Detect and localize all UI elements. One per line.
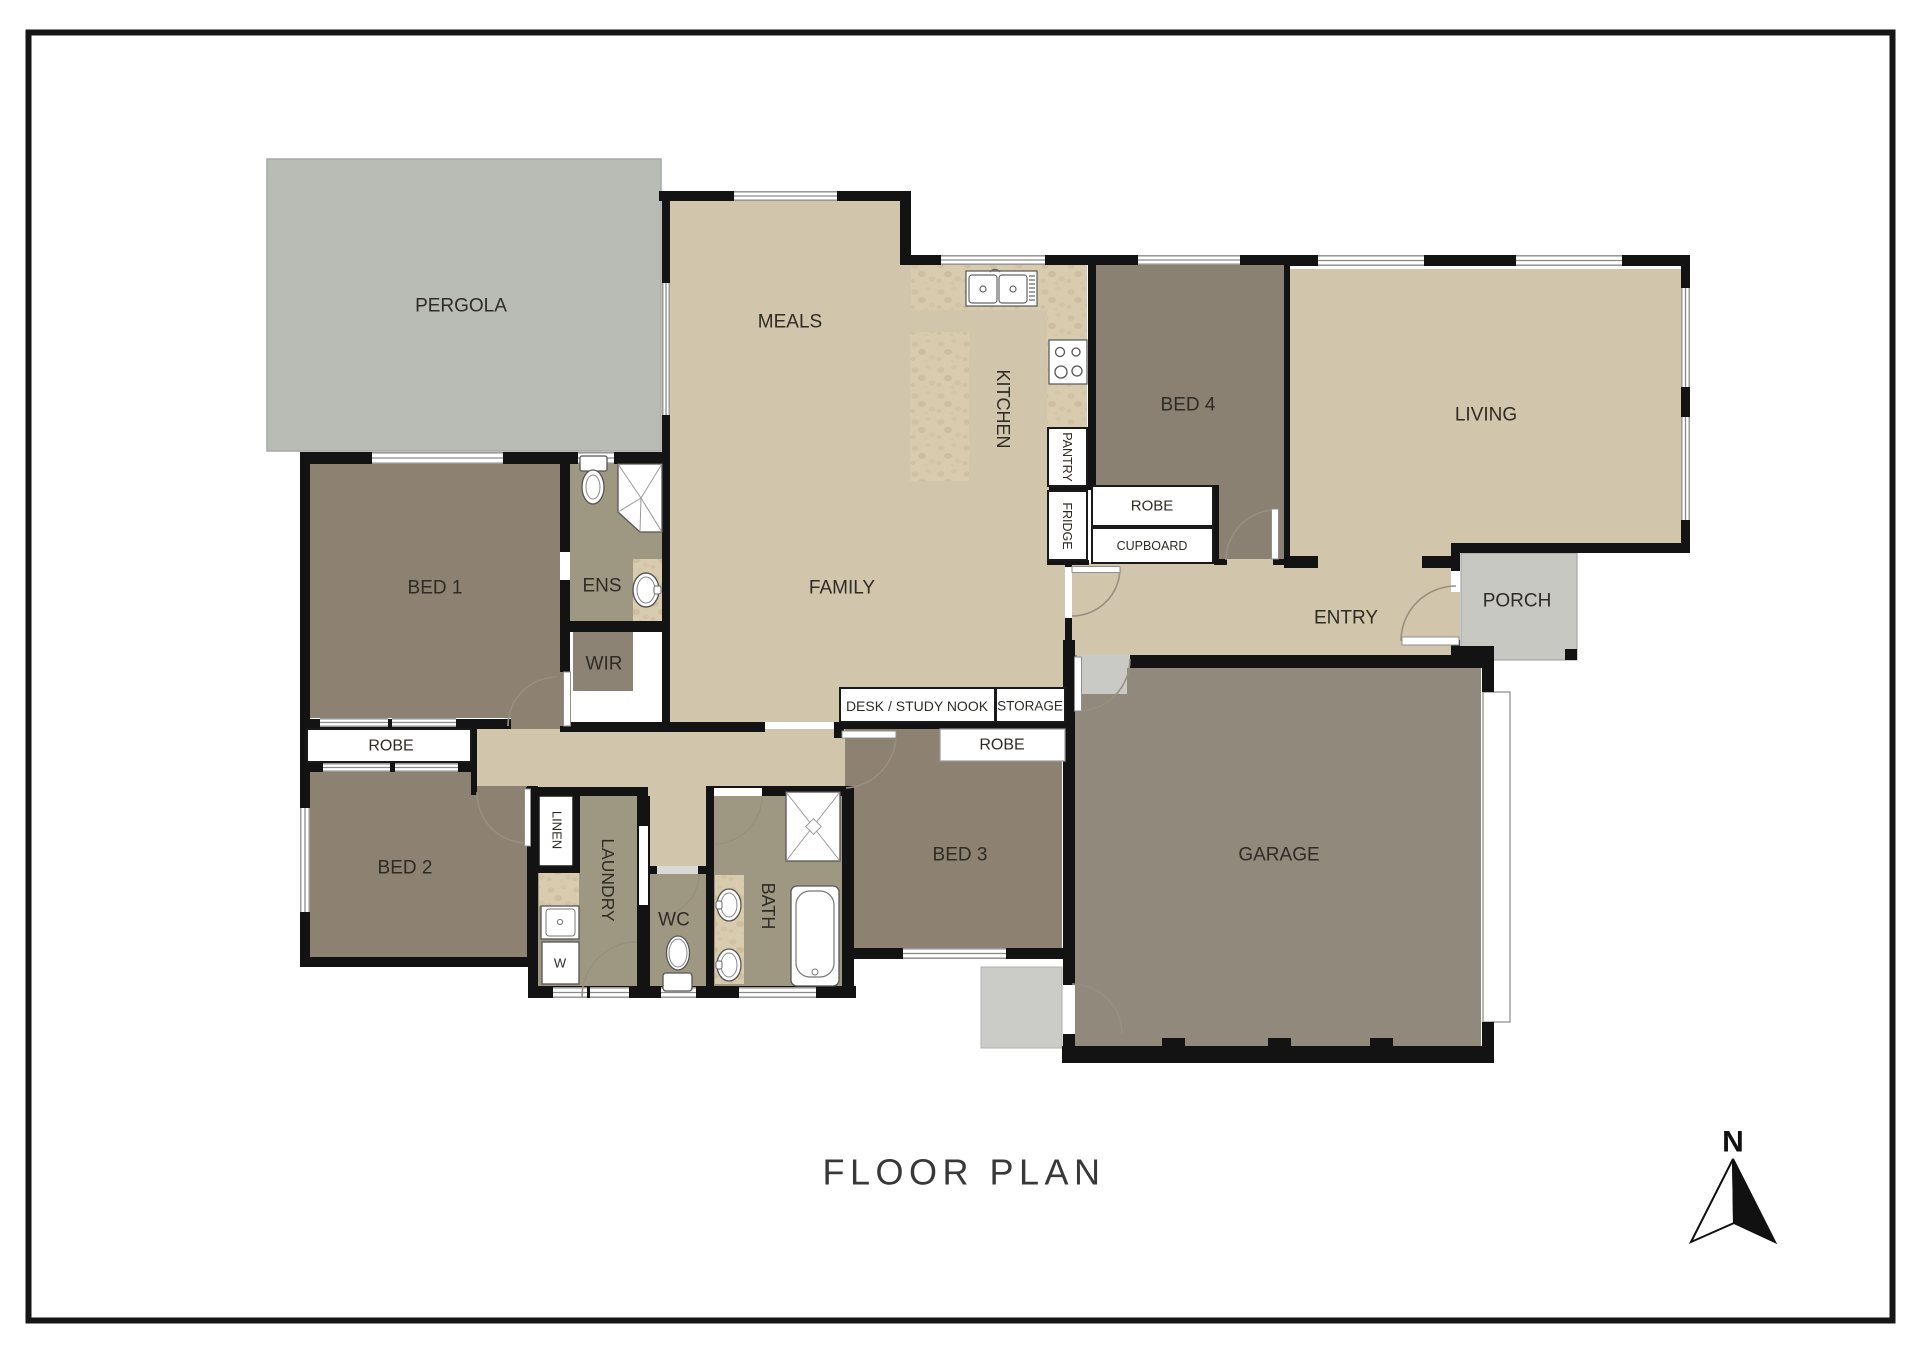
- svg-text:BED 2: BED 2: [378, 858, 433, 879]
- svg-text:MEALS: MEALS: [758, 312, 822, 333]
- svg-text:LIVING: LIVING: [1455, 405, 1517, 426]
- svg-text:BED 1: BED 1: [408, 578, 463, 599]
- svg-text:ENS: ENS: [582, 576, 621, 597]
- svg-text:PORCH: PORCH: [1483, 591, 1552, 612]
- svg-text:BED 4: BED 4: [1161, 395, 1216, 416]
- svg-text:N: N: [1722, 1126, 1744, 1159]
- svg-text:ROBE: ROBE: [368, 738, 413, 755]
- svg-text:DESK / STUDY NOOK: DESK / STUDY NOOK: [846, 698, 989, 714]
- svg-text:ENTRY: ENTRY: [1314, 608, 1378, 629]
- svg-text:GARAGE: GARAGE: [1238, 845, 1319, 866]
- svg-text:FAMILY: FAMILY: [809, 578, 875, 599]
- svg-text:FLOOR PLAN: FLOOR PLAN: [822, 1152, 1105, 1193]
- svg-text:W: W: [554, 956, 567, 971]
- svg-text:CUPBOARD: CUPBOARD: [1117, 539, 1188, 553]
- svg-text:BED 3: BED 3: [933, 845, 988, 866]
- svg-text:FRIDGE: FRIDGE: [1060, 502, 1074, 549]
- svg-text:WIR: WIR: [586, 654, 623, 675]
- svg-text:ROBE: ROBE: [979, 737, 1024, 754]
- svg-text:ROBE: ROBE: [1131, 498, 1174, 515]
- svg-text:PERGOLA: PERGOLA: [415, 296, 507, 317]
- svg-text:WC: WC: [658, 910, 690, 931]
- svg-text:BATH: BATH: [758, 883, 778, 930]
- svg-text:PANTRY: PANTRY: [1060, 432, 1074, 482]
- svg-text:STORAGE: STORAGE: [997, 699, 1063, 714]
- svg-text:LINEN: LINEN: [550, 811, 565, 849]
- svg-text:KITCHEN: KITCHEN: [993, 369, 1013, 448]
- svg-text:LAUNDRY: LAUNDRY: [598, 838, 618, 922]
